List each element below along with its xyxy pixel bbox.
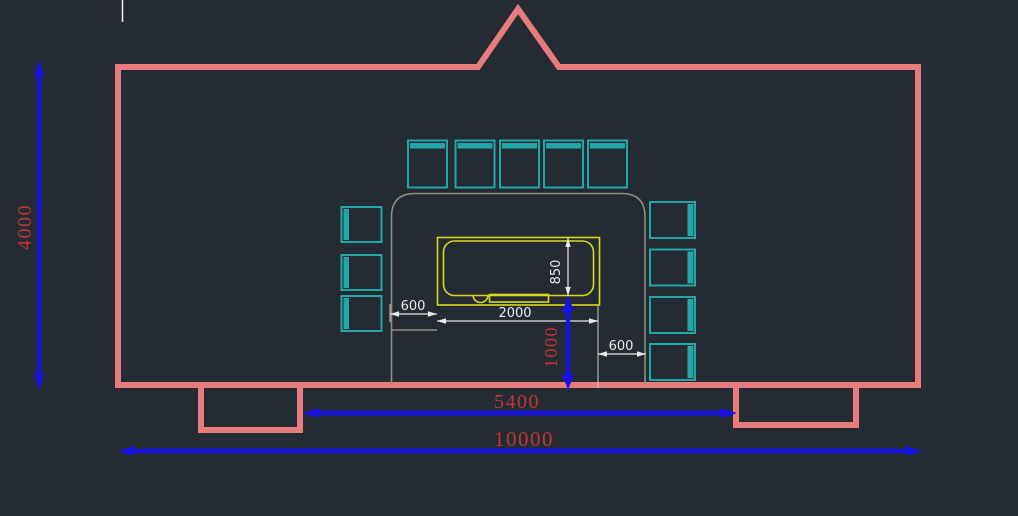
chair-back xyxy=(688,252,694,284)
chair-back xyxy=(502,143,537,149)
center-table[interactable] xyxy=(438,238,600,306)
dimension-arrow xyxy=(905,446,922,456)
chair-back xyxy=(410,143,445,149)
chair-back xyxy=(688,299,694,331)
cad-drawing-canvas[interactable]: 600 2000 850 600 4000 1000 xyxy=(0,0,1018,516)
dimension-text: 850 xyxy=(549,260,564,285)
dimension-table-to-front-wall[interactable]: 1000 xyxy=(541,296,574,390)
room-walls[interactable] xyxy=(115,9,921,430)
dimension-text: 600 xyxy=(401,299,426,314)
wall-right-pier xyxy=(736,388,856,425)
chair-back xyxy=(688,204,694,236)
dimension-arrow xyxy=(437,318,446,323)
dimension-arrow xyxy=(303,408,320,418)
dimension-text: 5400 xyxy=(494,391,540,413)
chair-back xyxy=(458,143,493,149)
dimension-left-clearance[interactable]: 600 xyxy=(390,299,437,317)
chair-back xyxy=(344,209,350,240)
dimension-front-span[interactable]: 5400 xyxy=(303,391,737,418)
dimension-table-length[interactable]: 2000 xyxy=(437,306,598,324)
dimension-arrow xyxy=(589,318,598,323)
dimension-text: 10000 xyxy=(494,427,554,451)
table-inner-rounded-rect xyxy=(444,241,594,296)
chair-back xyxy=(344,257,350,288)
dimension-arrow xyxy=(118,446,135,456)
chair-column-right[interactable] xyxy=(650,202,695,380)
dimension-text: 1000 xyxy=(541,326,561,368)
dimension-arrow xyxy=(428,311,437,316)
dimension-arrow xyxy=(565,287,570,296)
dimension-arrow xyxy=(34,373,44,390)
dimension-text: 2000 xyxy=(498,306,531,321)
dimension-arrow xyxy=(598,351,607,356)
wall-outline-with-peak xyxy=(118,9,918,388)
dimension-text: 4000 xyxy=(14,204,36,250)
dimension-room-height[interactable]: 4000 xyxy=(14,60,44,390)
chair-back xyxy=(344,298,350,329)
dimension-text: 600 xyxy=(609,339,634,354)
wall-left-pier xyxy=(201,388,300,430)
chair-row-top[interactable] xyxy=(408,141,627,188)
dimension-arrow xyxy=(565,238,570,247)
chair-back xyxy=(688,346,694,378)
dimension-table-depth[interactable]: 850 xyxy=(549,238,571,296)
chair-column-left[interactable] xyxy=(342,207,382,331)
chair-back xyxy=(546,143,581,149)
dimension-arrow xyxy=(34,60,44,77)
chair-back xyxy=(590,143,625,149)
dimension-right-clearance[interactable]: 600 xyxy=(598,339,646,357)
